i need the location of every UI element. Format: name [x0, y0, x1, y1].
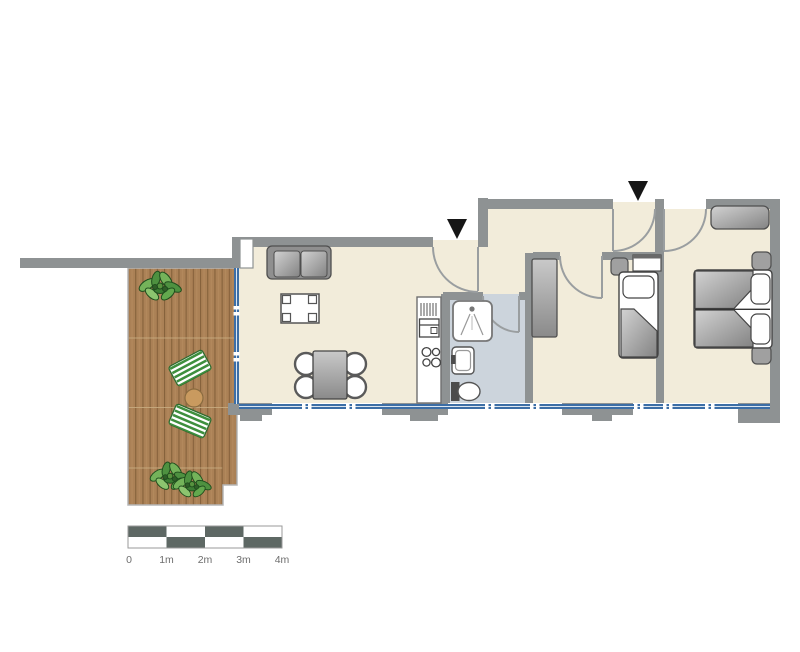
- side-table-icon: [185, 389, 203, 407]
- dining-set: [295, 351, 366, 399]
- entrance-threshold-2: [613, 202, 655, 211]
- wall-riser-hall: [478, 198, 488, 247]
- shower-icon: [453, 301, 492, 341]
- entrance-arrow-icon: [447, 219, 467, 239]
- floorplan-page: 0 1m 2m 3m 4m: [0, 0, 800, 652]
- wall-bath-north-b: [519, 292, 533, 300]
- shelf-icon: [633, 255, 661, 271]
- floorplan-drawing: 0 1m 2m 3m 4m: [0, 0, 800, 652]
- tap-icon: [451, 355, 456, 364]
- scale-label-2m: 2m: [198, 554, 213, 566]
- wall-kitchen-bath: [441, 294, 450, 403]
- entrance-arrow-icon: [628, 181, 648, 201]
- scale-label-3m: 3m: [236, 554, 251, 566]
- sofa-icon: [267, 246, 331, 279]
- terrace: [128, 268, 237, 505]
- toilet-icon: [451, 382, 480, 401]
- wardrobe-icon: [532, 259, 557, 337]
- nightstand-icon: [752, 252, 771, 270]
- entrance-threshold-1: [433, 240, 478, 249]
- wall-pier-3-step: [592, 415, 612, 421]
- kitchen: [417, 297, 441, 403]
- coffee-table-icon: [281, 294, 319, 323]
- scale-label-1m: 1m: [159, 554, 174, 566]
- dining-table-icon: [313, 351, 347, 399]
- wall-pier-2-step: [410, 415, 438, 421]
- wall-living-north: [232, 237, 433, 247]
- wall-terrace-north: [20, 258, 240, 268]
- fridge-icon: [420, 319, 440, 337]
- double-bed-icon: [694, 270, 772, 348]
- wall-pier-1-step: [240, 415, 262, 421]
- pillow: [751, 274, 770, 304]
- washbasin-icon: [451, 347, 474, 374]
- pillow: [751, 314, 770, 344]
- single-bed-icon: [619, 272, 658, 358]
- scale-bar: 0 1m 2m 3m 4m: [126, 526, 289, 566]
- terrace-door-opening: [240, 239, 253, 268]
- nightstand-icon: [752, 346, 771, 364]
- wall-hall-north: [488, 199, 613, 209]
- scale-label-4m: 4m: [275, 554, 290, 566]
- wall-riser-bedroom2: [655, 199, 664, 253]
- scale-labels: 0 1m 2m 3m 4m: [126, 554, 289, 566]
- scale-label-0: 0: [126, 554, 132, 566]
- dresser-icon: [711, 206, 769, 229]
- terrace-deck: [128, 268, 237, 505]
